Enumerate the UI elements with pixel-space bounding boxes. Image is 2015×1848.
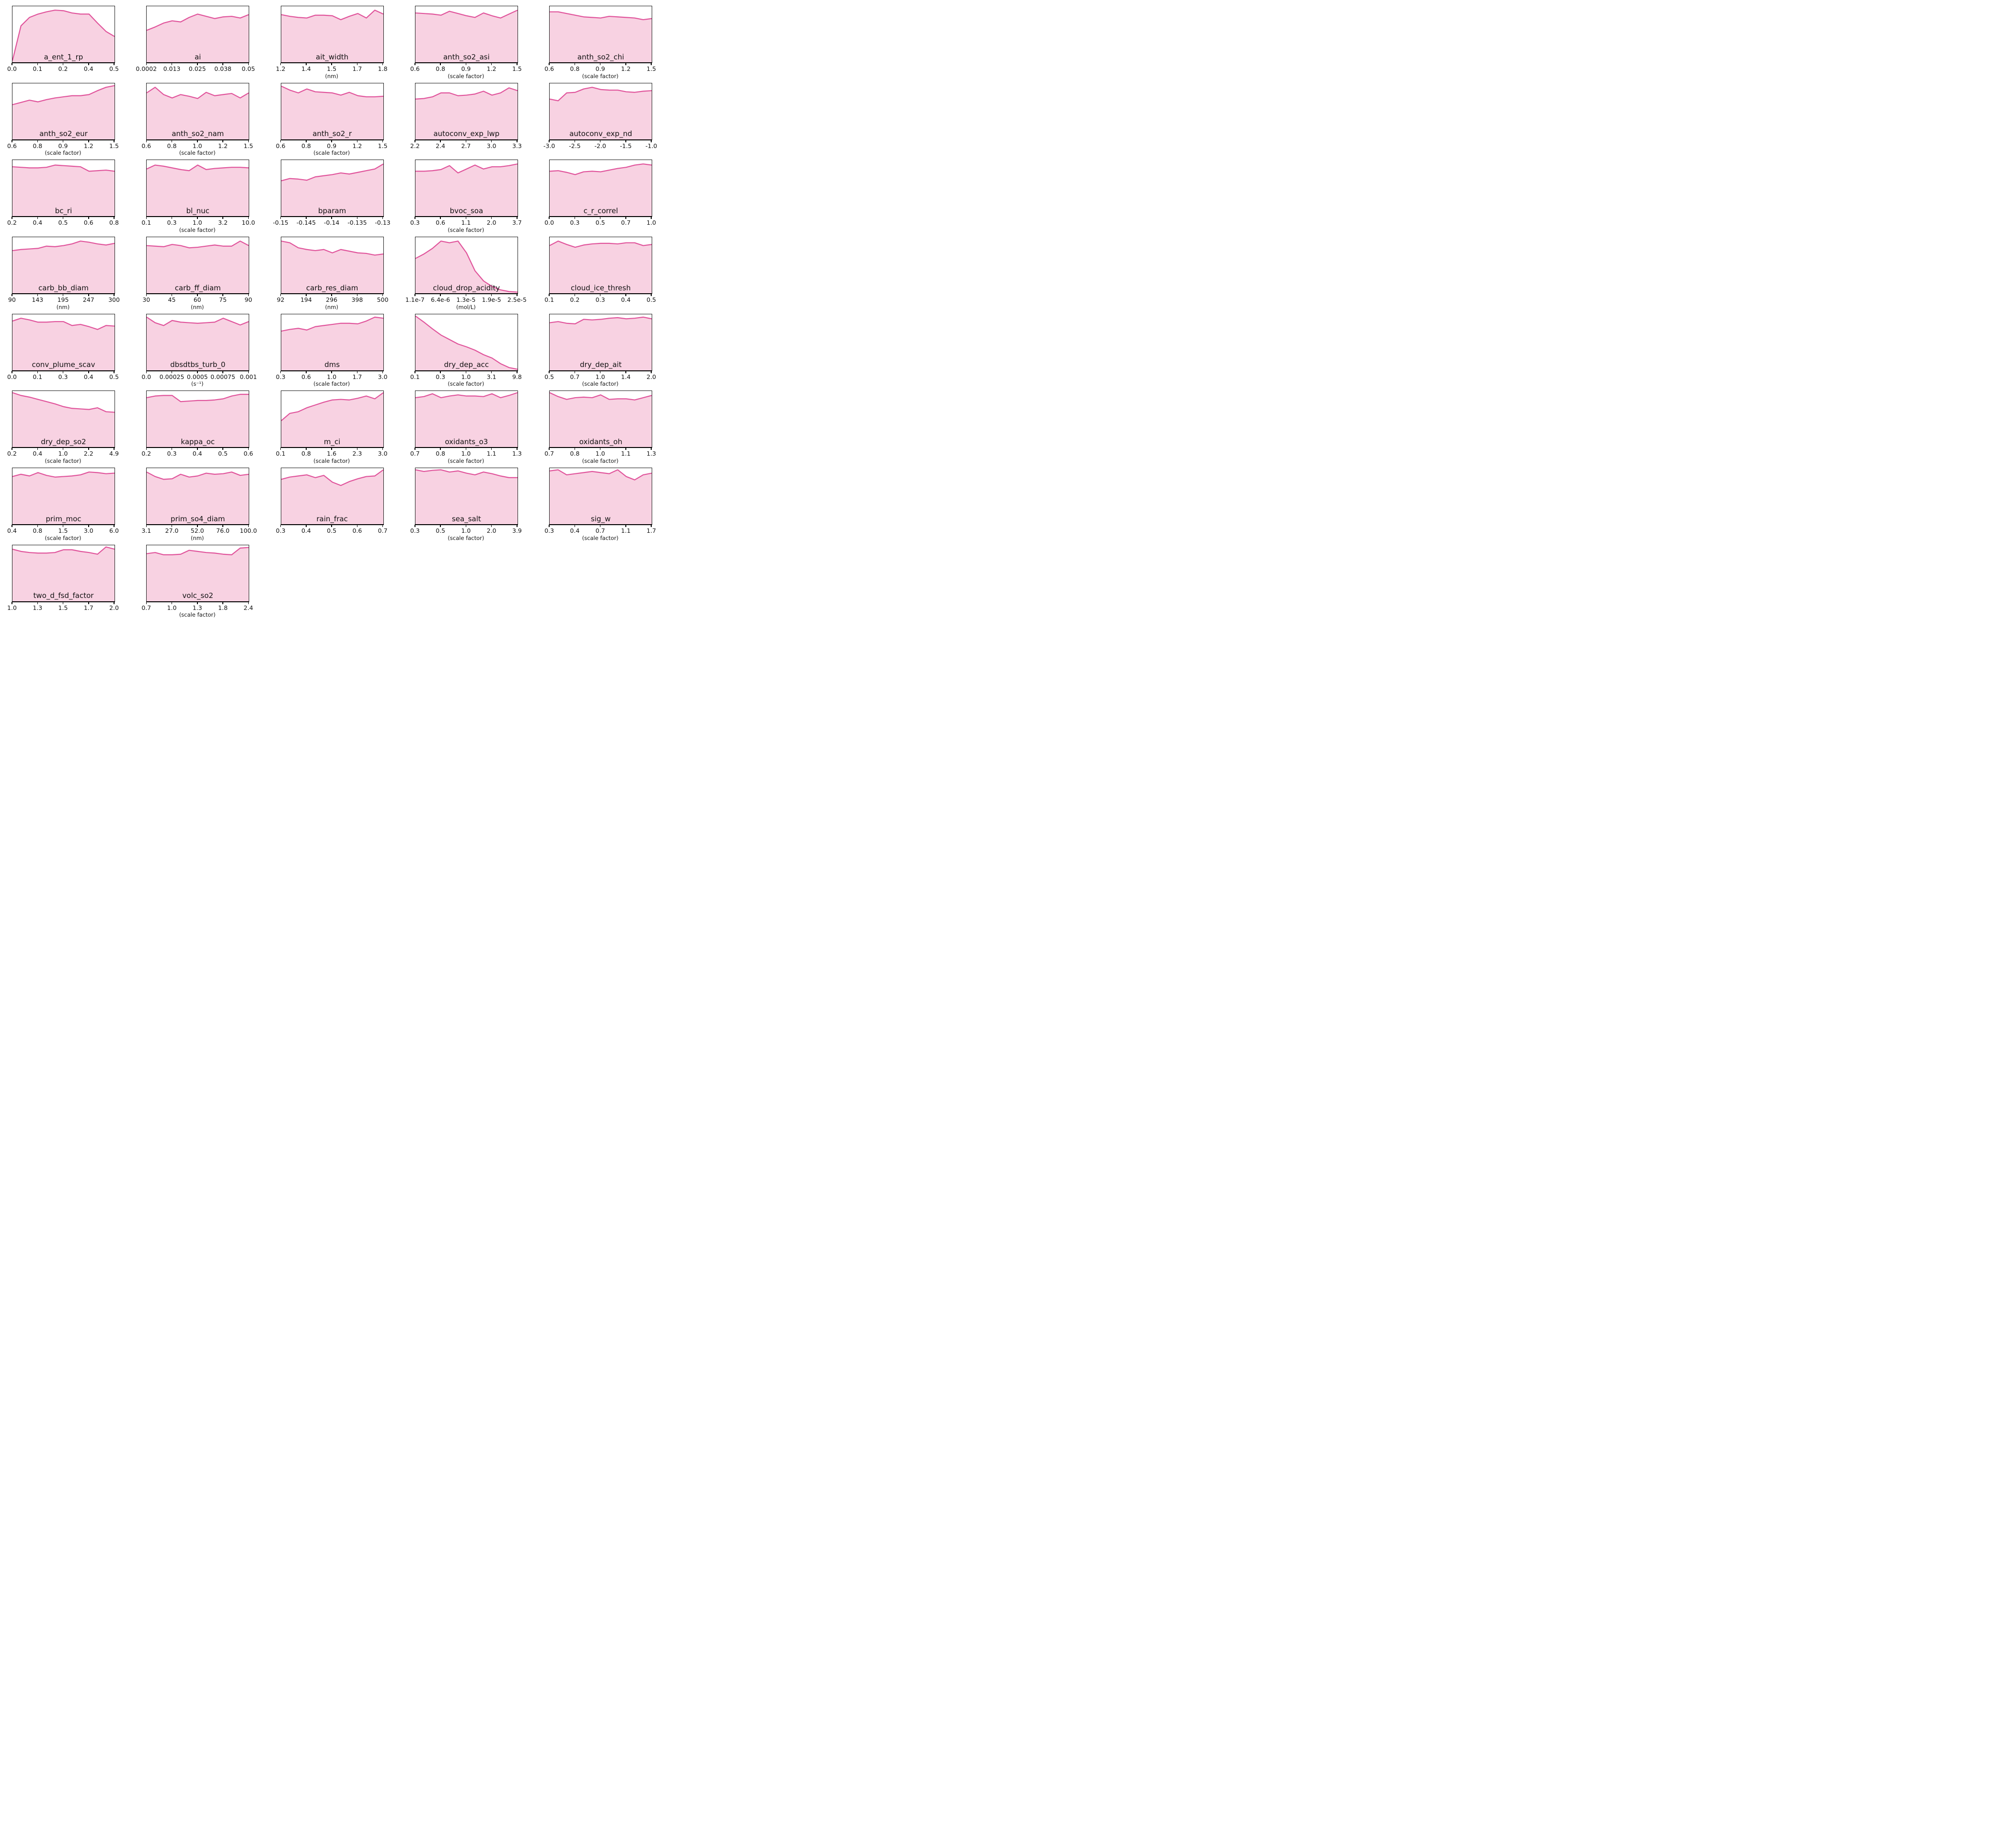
x-tick-label: 30 — [142, 296, 150, 303]
param-title: m_ci — [324, 438, 341, 446]
axes-box: sea_salt — [415, 468, 518, 525]
axes-box: carb_ff_diam — [146, 237, 249, 294]
x-tick-label: 2.4 — [436, 142, 445, 149]
param-title: cloud_ice_thresh — [571, 284, 631, 292]
x-tick-label: 0.7 — [570, 373, 580, 380]
x-tick-label: 296 — [326, 296, 337, 303]
chart-panel-oxidants_o3: oxidants_o3 0.7 0.8 1.0 1.1 1.3 (scale f… — [403, 385, 537, 462]
x-tick-label: 0.9 — [461, 65, 471, 72]
param-title: dry_dep_acc — [444, 361, 489, 369]
x-tick-label: 0.7 — [141, 604, 151, 611]
param-title: prim_so4_diam — [171, 515, 225, 523]
chart-panel-two_d_fsd_factor: two_d_fsd_factor 1.0 1.3 1.5 1.7 2.0 — [0, 539, 134, 616]
x-tick-label: 1.2 — [352, 142, 362, 149]
x-tick-label: 0.8 — [33, 142, 42, 149]
param-title: carb_ff_diam — [175, 284, 221, 292]
x-tick-label: 2.2 — [410, 142, 420, 149]
x-tick-label: 1.6 — [327, 450, 336, 457]
param-title: autoconv_exp_lwp — [433, 130, 499, 138]
x-tick-label: 1.3e-5 — [456, 296, 475, 303]
x-tick-label: 0.6 — [301, 373, 311, 380]
x-tick-label: 1.5 — [243, 142, 253, 149]
param-title: cloud_drop_acidity — [433, 284, 500, 292]
x-tick-label: 1.0 — [7, 604, 17, 611]
x-tick-label: 0.9 — [327, 142, 336, 149]
x-tick-label: 1.1 — [621, 450, 631, 457]
x-tick-label: 2.0 — [109, 604, 119, 611]
x-tick-label: 0.9 — [596, 65, 605, 72]
chart-panel-autoconv_exp_nd: autoconv_exp_nd -3.0 -2.5 -2.0 -1.5 -1.0 — [537, 77, 671, 154]
x-tick-label: 1.0 — [461, 527, 471, 534]
param-title: conv_plume_scav — [32, 361, 95, 369]
x-tick-label: 1.2 — [84, 142, 93, 149]
x-tick-label: 2.5e-5 — [507, 296, 527, 303]
chart-panel-ait_width: ait_width 1.2 1.4 1.5 1.7 1.8 (nm) — [269, 0, 403, 77]
axes-box: bc_ri — [12, 160, 115, 217]
x-tick-label: 0.4 — [7, 527, 17, 534]
x-tick-label: 75 — [219, 296, 227, 303]
x-tick-label: 1.0 — [596, 373, 605, 380]
x-tick-label: 1.5 — [646, 65, 656, 72]
x-tick-label: 0.00075 — [210, 373, 235, 380]
axes-box: anth_so2_nam — [146, 83, 249, 140]
x-tick-label: 0.1 — [141, 219, 151, 226]
x-unit-label: (scale factor) — [448, 535, 484, 541]
param-title: carb_bb_diam — [38, 284, 89, 292]
x-tick-label: 0.3 — [167, 450, 177, 457]
x-unit-label: (scale factor) — [179, 611, 216, 618]
x-tick-label: 0.0005 — [187, 373, 208, 380]
x-tick-label: 1.2 — [218, 142, 228, 149]
chart-panel-a_ent_1_rp: a_ent_1_rp 0.0 0.1 0.2 0.4 0.5 — [0, 0, 134, 77]
chart-panel-sea_salt: sea_salt 0.3 0.5 1.0 2.0 3.9 (scale fact… — [403, 462, 537, 539]
x-tick-label: 1.3 — [646, 450, 656, 457]
chart-panel-bvoc_soa: bvoc_soa 0.3 0.6 1.1 2.0 3.7 (scale fact… — [403, 154, 537, 231]
x-tick-label: 0.3 — [570, 219, 580, 226]
x-tick-label: -2.5 — [569, 142, 580, 149]
x-tick-label: 1.0 — [193, 142, 202, 149]
param-title: dms — [324, 361, 340, 369]
x-tick-label: 0.3 — [410, 219, 420, 226]
x-tick-label: 2.0 — [646, 373, 656, 380]
x-tick-label: 1.0 — [596, 450, 605, 457]
x-tick-label: 1.1 — [621, 527, 631, 534]
axes-box: kappa_oc — [146, 390, 249, 448]
x-tick-label: 3.0 — [84, 527, 93, 534]
x-tick-label: 0.6 — [410, 65, 420, 72]
x-tick-label: 0.5 — [58, 219, 68, 226]
x-tick-label: 0.5 — [436, 527, 445, 534]
param-title: ait_width — [316, 53, 348, 61]
axes-box: dry_dep_acc — [415, 314, 518, 371]
x-tick-label: -0.14 — [324, 219, 339, 226]
x-tick-label: -1.0 — [645, 142, 657, 149]
x-tick-label: 0.5 — [596, 219, 605, 226]
axes-box: prim_so4_diam — [146, 468, 249, 525]
x-tick-label: 0.4 — [621, 296, 631, 303]
x-tick-label: 0.5 — [327, 527, 336, 534]
x-tick-label: 0.013 — [163, 65, 181, 72]
param-title: sea_salt — [452, 515, 481, 523]
x-tick-label: 3.0 — [487, 142, 496, 149]
x-tick-label: 0.1 — [410, 373, 420, 380]
axes-box: ait_width — [281, 6, 384, 63]
x-tick-label: 1.8 — [218, 604, 228, 611]
param-title: anth_so2_eur — [39, 130, 88, 138]
axes-box: bl_nuc — [146, 160, 249, 217]
x-tick-label: 3.3 — [512, 142, 522, 149]
x-unit-label: (scale factor) — [582, 535, 619, 541]
x-tick-label: 1.7 — [352, 65, 362, 72]
x-tick-label: 0.4 — [33, 450, 42, 457]
param-title: sig_w — [591, 515, 610, 523]
x-tick-label: 0.6 — [352, 527, 362, 534]
chart-panel-rain_frac: rain_frac 0.3 0.4 0.5 0.6 0.7 — [269, 462, 403, 539]
x-tick-label: 1.7 — [646, 527, 656, 534]
chart-panel-sig_w: sig_w 0.3 0.4 0.7 1.1 1.7 (scale factor) — [537, 462, 671, 539]
x-tick-label: 0.0002 — [136, 65, 157, 72]
x-tick-label: 1.0 — [646, 219, 656, 226]
x-tick-label: 0.5 — [218, 450, 228, 457]
axes-box: carb_bb_diam — [12, 237, 115, 294]
chart-panel-anth_so2_asi: anth_so2_asi 0.6 0.8 0.9 1.2 1.5 (scale … — [403, 0, 537, 77]
x-tick-label: 0.3 — [544, 527, 554, 534]
marginal-density-grid: a_ent_1_rp 0.0 0.1 0.2 0.4 0.5 ai 0.0002… — [0, 0, 672, 616]
x-tick-label: 27.0 — [165, 527, 179, 534]
param-title: kappa_oc — [181, 438, 215, 446]
axes-box: sig_w — [549, 468, 652, 525]
x-tick-label: 0.038 — [214, 65, 231, 72]
param-title: dry_dep_so2 — [41, 438, 86, 446]
x-tick-label: 1.5 — [58, 527, 68, 534]
x-tick-label: 3.7 — [512, 219, 522, 226]
x-tick-label: 3.0 — [378, 450, 388, 457]
x-tick-label: 0.8 — [33, 527, 42, 534]
axes-box: autoconv_exp_nd — [549, 83, 652, 140]
chart-panel-anth_so2_eur: anth_so2_eur 0.6 0.8 0.9 1.2 1.5 (scale … — [0, 77, 134, 154]
param-title: ai — [195, 53, 201, 61]
x-tick-label: 398 — [351, 296, 363, 303]
x-tick-label: 0.1 — [276, 450, 286, 457]
chart-panel-prim_so4_diam: prim_so4_diam 3.1 27.0 52.0 76.0 100.0 (… — [134, 462, 268, 539]
x-tick-label: 194 — [300, 296, 312, 303]
x-tick-label: 1.0 — [461, 450, 471, 457]
x-tick-label: 0.2 — [58, 65, 68, 72]
x-tick-label: 0.8 — [109, 219, 119, 226]
axes-box: anth_so2_r — [281, 83, 384, 140]
param-title: a_ent_1_rp — [44, 53, 83, 61]
x-tick-label: 90 — [244, 296, 252, 303]
x-tick-label: 0.6 — [84, 219, 93, 226]
x-tick-label: 0.8 — [301, 450, 311, 457]
x-tick-label: 0.8 — [570, 450, 580, 457]
x-tick-label: 0.00025 — [160, 373, 184, 380]
x-tick-label: 0.3 — [276, 527, 286, 534]
axes-box: a_ent_1_rp — [12, 6, 115, 63]
x-tick-label: 1.7 — [84, 604, 93, 611]
chart-panel-dms: dms 0.3 0.6 1.0 1.7 3.0 (scale factor) — [269, 308, 403, 385]
chart-panel-conv_plume_scav: conv_plume_scav 0.0 0.1 0.3 0.4 0.5 — [0, 308, 134, 385]
x-tick-label: 1.1 — [461, 219, 471, 226]
param-title: bparam — [318, 207, 346, 215]
x-tick-label: 0.6 — [7, 142, 17, 149]
chart-panel-bl_nuc: bl_nuc 0.1 0.3 1.0 3.2 10.0 (scale facto… — [134, 154, 268, 231]
chart-panel-autoconv_exp_lwp: autoconv_exp_lwp 2.2 2.4 2.7 3.0 3.3 — [403, 77, 537, 154]
x-tick-label: 1.1e-7 — [405, 296, 425, 303]
axes-box: autoconv_exp_lwp — [415, 83, 518, 140]
x-tick-label: 0.025 — [189, 65, 206, 72]
param-title: bvoc_soa — [450, 207, 484, 215]
param-title: anth_so2_asi — [443, 53, 490, 61]
x-tick-label: 0.4 — [301, 527, 311, 534]
x-tick-label: -0.13 — [375, 219, 390, 226]
param-title: anth_so2_chi — [577, 53, 624, 61]
x-tick-label: 1.0 — [167, 604, 177, 611]
x-tick-label: 1.0 — [58, 450, 68, 457]
x-tick-label: 1.5 — [512, 65, 522, 72]
param-title: two_d_fsd_factor — [34, 592, 94, 600]
x-tick-label: 300 — [108, 296, 120, 303]
x-tick-label: 0.05 — [242, 65, 255, 72]
x-tick-label: 1.0 — [327, 373, 336, 380]
x-tick-label: 4.9 — [109, 450, 119, 457]
x-tick-label: 0.5 — [646, 296, 656, 303]
x-tick-label: 0.4 — [193, 450, 202, 457]
x-tick-label: 0.5 — [109, 65, 119, 72]
chart-panel-carb_bb_diam: carb_bb_diam 90 143 195 247 300 (nm) — [0, 231, 134, 308]
axes-box: m_ci — [281, 390, 384, 448]
x-tick-label: 45 — [168, 296, 176, 303]
param-title: oxidants_oh — [579, 438, 622, 446]
chart-panel-m_ci: m_ci 0.1 0.8 1.6 2.3 3.0 (scale factor) — [269, 385, 403, 462]
x-tick-label: 2.4 — [243, 604, 253, 611]
x-tick-label: 0.0 — [544, 219, 554, 226]
x-tick-label: 1.8 — [378, 65, 388, 72]
x-tick-label: 0.2 — [7, 450, 17, 457]
chart-panel-carb_ff_diam: carb_ff_diam 30 45 60 75 90 (nm) — [134, 231, 268, 308]
x-tick-label: 0.4 — [570, 527, 580, 534]
x-tick-label: 0.3 — [596, 296, 605, 303]
x-tick-label: 2.7 — [461, 142, 471, 149]
param-title: dbsdtbs_turb_0 — [170, 361, 225, 369]
x-tick-label: 3.9 — [512, 527, 522, 534]
axes-box: volc_so2 — [146, 545, 249, 602]
param-title: volc_so2 — [183, 592, 214, 600]
x-tick-label: 90 — [8, 296, 16, 303]
param-title: anth_so2_r — [312, 130, 352, 138]
x-tick-label: 143 — [32, 296, 43, 303]
axes-box: dms — [281, 314, 384, 371]
chart-panel-volc_so2: volc_so2 0.7 1.0 1.3 1.8 2.4 (scale fact… — [134, 539, 268, 616]
x-tick-label: 1.5 — [378, 142, 388, 149]
chart-panel-dry_dep_so2: dry_dep_so2 0.2 0.4 1.0 2.2 4.9 (scale f… — [0, 385, 134, 462]
x-tick-label: 0.7 — [596, 527, 605, 534]
x-tick-label: 0.4 — [33, 219, 42, 226]
x-tick-label: -1.5 — [620, 142, 632, 149]
axes-box: bvoc_soa — [415, 160, 518, 217]
x-tick-label: 1.7 — [352, 373, 362, 380]
x-tick-label: 2.0 — [487, 219, 496, 226]
axes-box: oxidants_o3 — [415, 390, 518, 448]
axes-box: c_r_correl — [549, 160, 652, 217]
x-tick-label: 1.5 — [109, 142, 119, 149]
x-tick-label: 92 — [277, 296, 285, 303]
x-tick-label: 2.3 — [352, 450, 362, 457]
chart-panel-anth_so2_r: anth_so2_r 0.6 0.8 0.9 1.2 1.5 (scale fa… — [269, 77, 403, 154]
axes-box: bparam — [281, 160, 384, 217]
x-tick-label: 0.1 — [544, 296, 554, 303]
x-tick-label: 1.9e-5 — [482, 296, 501, 303]
x-tick-label: -3.0 — [543, 142, 555, 149]
x-tick-label: 0.7 — [544, 450, 554, 457]
chart-panel-carb_res_diam: carb_res_diam 92 194 296 398 500 (nm) — [269, 231, 403, 308]
x-tick-label: 0.6 — [544, 65, 554, 72]
axes-box: oxidants_oh — [549, 390, 652, 448]
x-tick-label: 0.2 — [570, 296, 580, 303]
x-tick-label: 3.0 — [378, 373, 388, 380]
axes-box: cloud_drop_acidity — [415, 237, 518, 294]
x-tick-label: 0.7 — [621, 219, 631, 226]
x-tick-label: 0.3 — [58, 373, 68, 380]
chart-panel-cloud_drop_acidity: cloud_drop_acidity 1.1e-7 6.4e-6 1.3e-5 … — [403, 231, 537, 308]
x-tick-label: 0.6 — [243, 450, 253, 457]
x-tick-label: 0.6 — [276, 142, 286, 149]
x-tick-label: -0.135 — [347, 219, 367, 226]
x-tick-label: 9.8 — [512, 373, 522, 380]
axes-box: dry_dep_ait — [549, 314, 652, 371]
axes-box: cloud_ice_thresh — [549, 237, 652, 294]
chart-panel-bc_ri: bc_ri 0.2 0.4 0.5 0.6 0.8 — [0, 154, 134, 231]
chart-panel-dbsdtbs_turb_0: dbsdtbs_turb_0 0.0 0.00025 0.0005 0.0007… — [134, 308, 268, 385]
x-tick-label: 0.3 — [167, 219, 177, 226]
axes-box: rain_frac — [281, 468, 384, 525]
x-tick-label: -0.145 — [297, 219, 316, 226]
x-tick-label: 0.6 — [141, 142, 151, 149]
x-tick-label: -2.0 — [594, 142, 606, 149]
x-tick-label: 0.5 — [109, 373, 119, 380]
x-tick-label: 3.1 — [487, 373, 496, 380]
axes-box: two_d_fsd_factor — [12, 545, 115, 602]
x-tick-label: 0.9 — [58, 142, 68, 149]
x-tick-label: 2.0 — [487, 527, 496, 534]
chart-panel-anth_so2_chi: anth_so2_chi 0.6 0.8 0.9 1.2 1.5 (scale … — [537, 0, 671, 77]
chart-panel-bparam: bparam -0.15 -0.145 -0.14 -0.135 -0.13 — [269, 154, 403, 231]
x-tick-label: 0.8 — [436, 450, 445, 457]
axes-box: dry_dep_so2 — [12, 390, 115, 448]
axes-box: conv_plume_scav — [12, 314, 115, 371]
x-tick-label: 1.5 — [58, 604, 68, 611]
x-tick-label: 0.5 — [544, 373, 554, 380]
x-tick-label: 6.4e-6 — [431, 296, 450, 303]
x-tick-label: 0.8 — [570, 65, 580, 72]
x-tick-label: 1.0 — [461, 373, 471, 380]
x-tick-label: 60 — [194, 296, 201, 303]
param-title: c_r_correl — [584, 207, 618, 215]
chart-panel-cloud_ice_thresh: cloud_ice_thresh 0.1 0.2 0.3 0.4 0.5 — [537, 231, 671, 308]
x-tick-label: 0.0 — [7, 373, 17, 380]
x-tick-label: 6.0 — [109, 527, 119, 534]
x-tick-label: 0.4 — [84, 373, 93, 380]
axes-box: carb_res_diam — [281, 237, 384, 294]
x-tick-label: 1.3 — [193, 604, 202, 611]
param-title: bl_nuc — [186, 207, 209, 215]
x-tick-label: 1.2 — [276, 65, 286, 72]
x-tick-label: 1.4 — [301, 65, 311, 72]
param-title: autoconv_exp_nd — [569, 130, 632, 138]
x-tick-label: 500 — [377, 296, 389, 303]
x-tick-label: 0.3 — [410, 527, 420, 534]
x-tick-label: 0.0 — [7, 65, 17, 72]
axes-box: prim_moc — [12, 468, 115, 525]
chart-panel-dry_dep_acc: dry_dep_acc 0.1 0.3 1.0 3.1 9.8 (scale f… — [403, 308, 537, 385]
x-tick-label: 3.2 — [218, 219, 228, 226]
x-tick-label: 0.4 — [84, 65, 93, 72]
chart-panel-oxidants_oh: oxidants_oh 0.7 0.8 1.0 1.1 1.3 (scale f… — [537, 385, 671, 462]
x-tick-label: 1.0 — [193, 219, 202, 226]
axes-box: anth_so2_eur — [12, 83, 115, 140]
x-tick-label: 1.1 — [487, 450, 496, 457]
x-tick-label: 0.6 — [436, 219, 445, 226]
chart-panel-kappa_oc: kappa_oc 0.2 0.3 0.4 0.5 0.6 — [134, 385, 268, 462]
x-tick-label: 1.3 — [512, 450, 522, 457]
x-tick-label: 0.1 — [33, 65, 42, 72]
x-tick-label: 0.7 — [410, 450, 420, 457]
x-tick-label: 10.0 — [242, 219, 255, 226]
chart-panel-anth_so2_nam: anth_so2_nam 0.6 0.8 1.0 1.2 1.5 (scale … — [134, 77, 268, 154]
x-tick-label: 0.001 — [240, 373, 257, 380]
param-title: dry_dep_ait — [580, 361, 622, 369]
x-tick-label: 1.5 — [327, 65, 336, 72]
x-tick-label: 195 — [58, 296, 69, 303]
param-title: rain_frac — [316, 515, 347, 523]
x-tick-label: 1.2 — [621, 65, 631, 72]
axes-box: anth_so2_asi — [415, 6, 518, 63]
axes-box: anth_so2_chi — [549, 6, 652, 63]
axes-box: dbsdtbs_turb_0 — [146, 314, 249, 371]
axes-box: ai — [146, 6, 249, 63]
x-tick-label: 0.1 — [33, 373, 42, 380]
chart-panel-ai: ai 0.0002 0.013 0.025 0.038 0.05 — [134, 0, 268, 77]
x-tick-label: 2.2 — [84, 450, 93, 457]
x-tick-label: 0.8 — [301, 142, 311, 149]
param-title: oxidants_o3 — [445, 438, 488, 446]
x-tick-label: 0.3 — [276, 373, 286, 380]
x-tick-label: 247 — [83, 296, 94, 303]
param-title: bc_ri — [55, 207, 72, 215]
x-tick-label: 1.2 — [487, 65, 496, 72]
x-tick-label: 0.2 — [141, 450, 151, 457]
x-tick-label: 0.8 — [167, 142, 177, 149]
x-tick-label: 0.2 — [7, 219, 17, 226]
x-tick-label: -0.15 — [273, 219, 288, 226]
x-tick-label: 76.0 — [216, 527, 230, 534]
x-tick-label: 0.7 — [378, 527, 388, 534]
x-tick-label: 52.0 — [191, 527, 204, 534]
param-title: prim_moc — [46, 515, 81, 523]
param-title: carb_res_diam — [306, 284, 358, 292]
chart-panel-c_r_correl: c_r_correl 0.0 0.3 0.5 0.7 1.0 — [537, 154, 671, 231]
x-tick-label: 3.1 — [141, 527, 151, 534]
chart-panel-prim_moc: prim_moc 0.4 0.8 1.5 3.0 6.0 (scale fact… — [0, 462, 134, 539]
x-tick-label: 1.4 — [621, 373, 631, 380]
x-tick-label: 100.0 — [240, 527, 257, 534]
param-title: anth_so2_nam — [172, 130, 224, 138]
x-tick-label: 0.8 — [436, 65, 445, 72]
x-tick-label: 1.3 — [33, 604, 42, 611]
x-tick-label: 0.3 — [436, 373, 445, 380]
chart-panel-dry_dep_ait: dry_dep_ait 0.5 0.7 1.0 1.4 2.0 (scale f… — [537, 308, 671, 385]
x-tick-label: 0.0 — [141, 373, 151, 380]
